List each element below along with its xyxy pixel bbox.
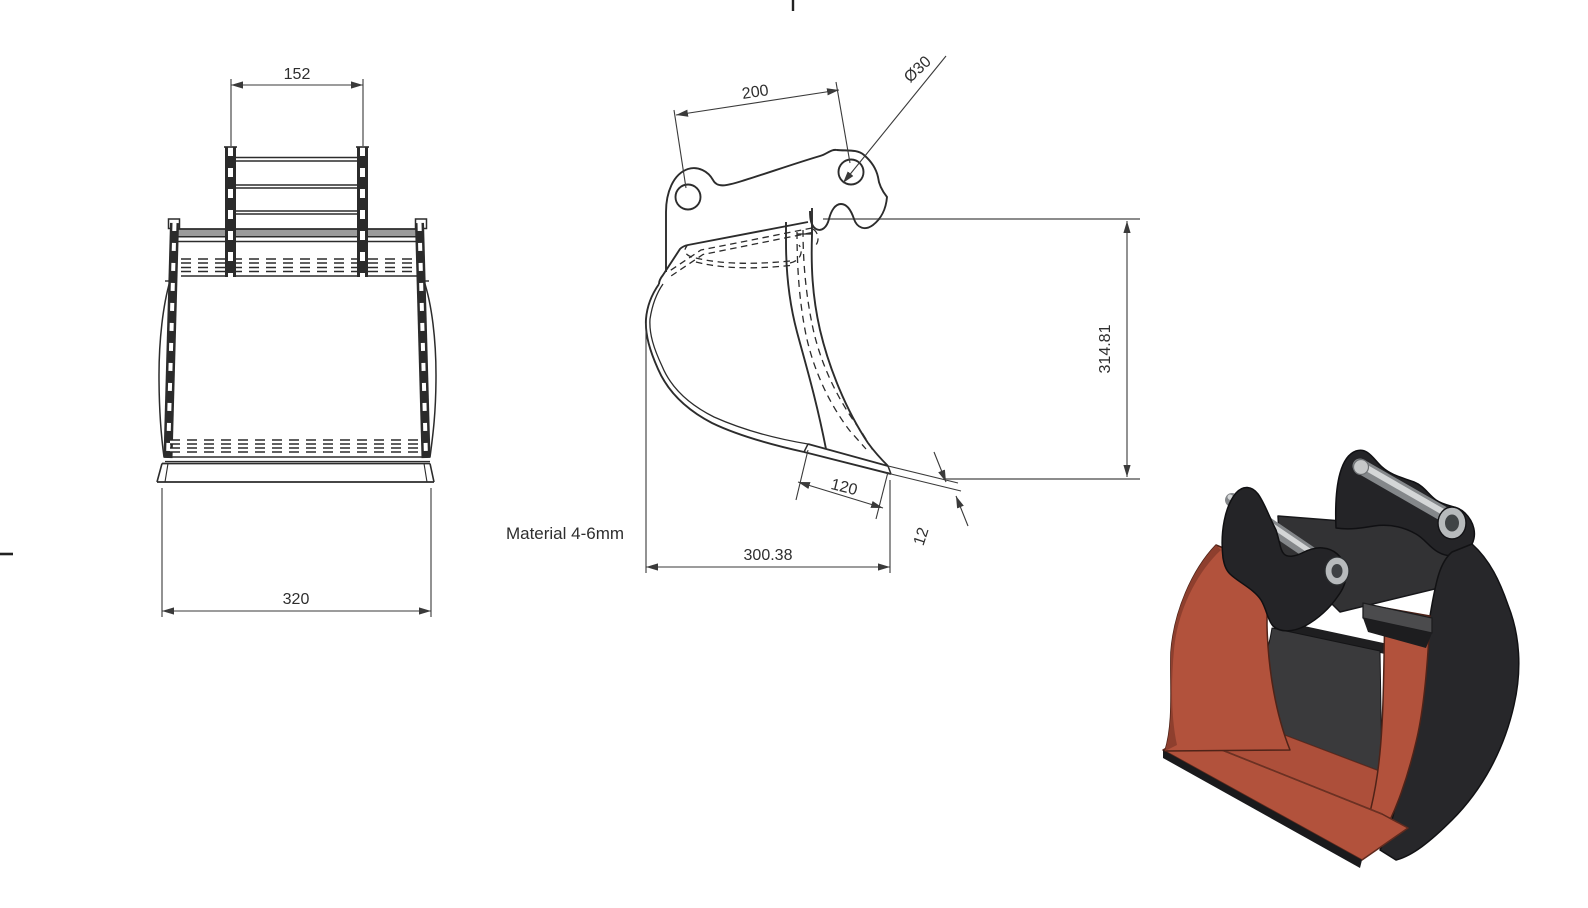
right-side-flange <box>420 223 437 458</box>
pin-hole-front <box>676 185 701 210</box>
front-view: 152 320 <box>157 66 436 617</box>
coupler-bracket <box>666 150 887 272</box>
render-near-hole-center <box>1332 564 1343 578</box>
dim-pin-spacing: 200 <box>674 82 850 188</box>
dim-cutting-edge-thickness: 12 <box>888 452 968 548</box>
render-far-hole-center <box>1445 515 1459 532</box>
dim-cutting-edge-length-text: 120 <box>829 476 859 499</box>
base-strip <box>157 464 434 483</box>
dim-hole-diameter: Ø30 <box>843 53 946 183</box>
hidden-lines-bottom <box>170 442 425 450</box>
dim-cutting-edge-length: 120 <box>796 450 888 519</box>
dim-cutting-edge-thickness-text: 12 <box>911 525 933 547</box>
dim-bracket-inner-width-text: 152 <box>284 66 311 83</box>
dim-overall-height: 314.81 <box>1097 221 1127 477</box>
dim-bucket-bottom-width-text: 320 <box>283 591 310 608</box>
bracket-crossbars <box>236 158 357 215</box>
drawing-sheet: 152 320 <box>0 0 1588 908</box>
dim-bucket-bottom-width: 320 <box>162 488 431 617</box>
hidden-lines-top <box>181 261 418 270</box>
technical-drawing-canvas: 152 320 <box>0 0 1588 908</box>
bracket-plates <box>224 147 369 277</box>
dim-bracket-inner-width: 152 <box>231 66 363 146</box>
dim-pin-spacing-text: 200 <box>741 82 770 103</box>
left-side-flange <box>159 223 175 458</box>
iso-render <box>1163 450 1519 868</box>
dim-overall-depth: 300.38 <box>646 323 890 573</box>
dim-overall-height-text: 314.81 <box>1097 324 1114 373</box>
pin-hole-rear <box>839 160 864 185</box>
pivot-tube <box>178 230 421 237</box>
dim-overall-depth-text: 300.38 <box>744 547 793 564</box>
material-note: Material 4-6mm <box>506 524 624 543</box>
dim-hole-diameter-text: Ø30 <box>901 53 935 86</box>
side-view: 200 Ø30 314.81 120 12 <box>506 53 1140 573</box>
bucket-profile <box>646 208 891 474</box>
